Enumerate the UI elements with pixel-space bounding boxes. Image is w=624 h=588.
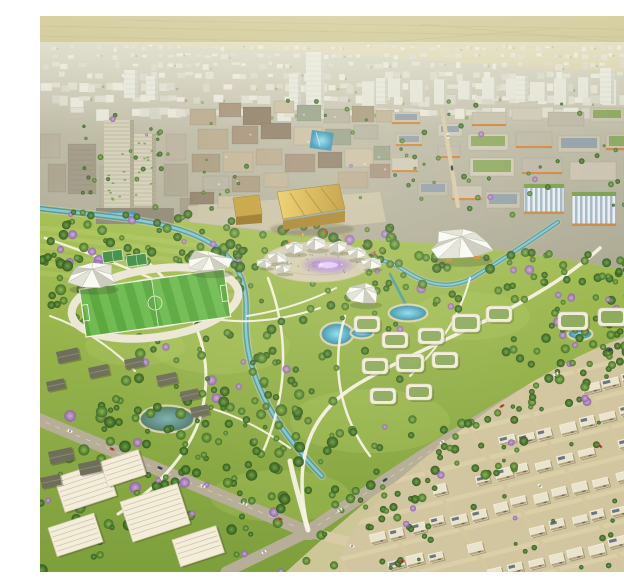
masterplan-svg bbox=[40, 16, 624, 572]
sunlight-overlay bbox=[40, 16, 624, 572]
aerial-cityscape-render: Aerial architectural rendering of a mixe… bbox=[40, 16, 624, 572]
